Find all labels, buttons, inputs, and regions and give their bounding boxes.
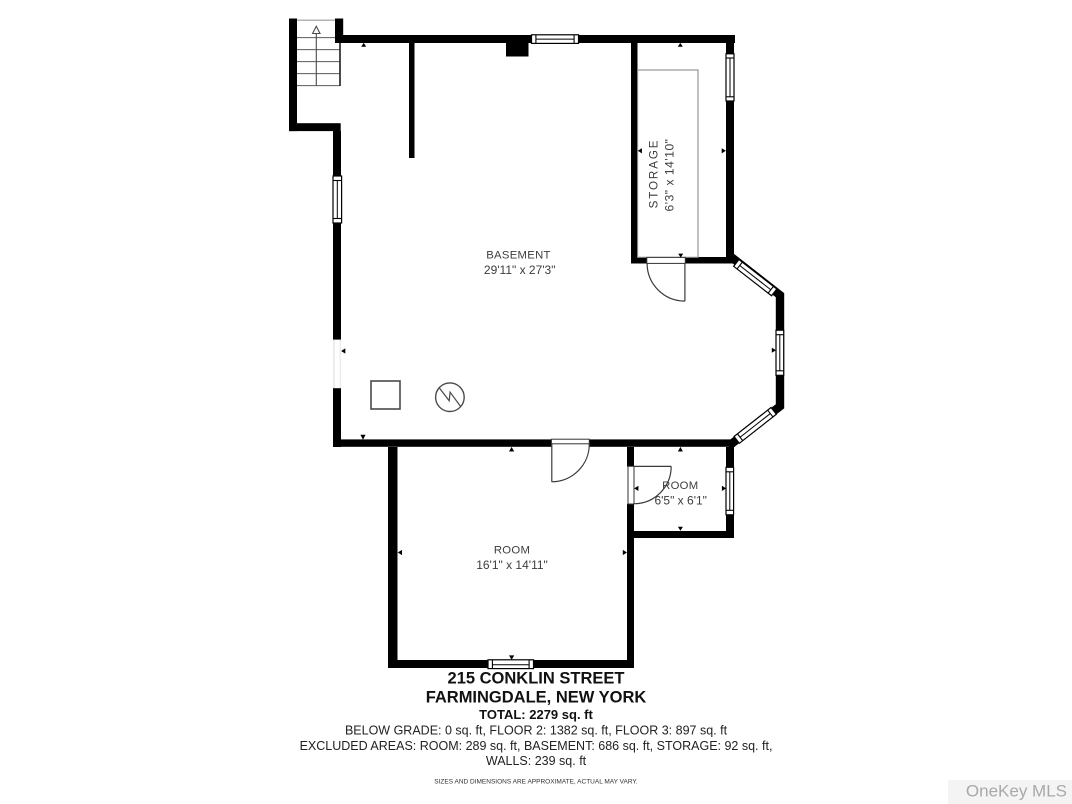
svg-text:BASEMENT: BASEMENT — [486, 250, 551, 262]
svg-text:ROOM: ROOM — [662, 480, 698, 492]
svg-text:6'3" x 14'10": 6'3" x 14'10" — [663, 139, 677, 212]
svg-text:FARMINGDALE, NEW YORK: FARMINGDALE, NEW YORK — [426, 689, 647, 707]
svg-text:SIZES AND DIMENSIONS ARE APPRO: SIZES AND DIMENSIONS ARE APPROXIMATE, AC… — [434, 778, 638, 785]
svg-text:215 CONKLIN STREET: 215 CONKLIN STREET — [448, 670, 625, 688]
svg-text:BELOW GRADE: 0 sq. ft, FLOOR 2: BELOW GRADE: 0 sq. ft, FLOOR 2: 1382 sq.… — [345, 724, 728, 738]
svg-text:29'11" x 27'3": 29'11" x 27'3" — [484, 263, 556, 277]
svg-text:6'5" x 6'1": 6'5" x 6'1" — [654, 494, 706, 508]
svg-text:16'1" x 14'11": 16'1" x 14'11" — [476, 558, 548, 572]
svg-text:WALLS: 239 sq. ft: WALLS: 239 sq. ft — [486, 754, 587, 768]
svg-text:OneKey MLS: OneKey MLS — [966, 782, 1067, 801]
svg-text:ROOM: ROOM — [494, 545, 530, 557]
svg-text:TOTAL: 2279 sq. ft: TOTAL: 2279 sq. ft — [479, 707, 593, 722]
svg-text:STORAGE: STORAGE — [648, 139, 661, 209]
svg-text:EXCLUDED AREAS: ROOM: 289 sq.: EXCLUDED AREAS: ROOM: 289 sq. ft, BASEME… — [300, 739, 773, 753]
